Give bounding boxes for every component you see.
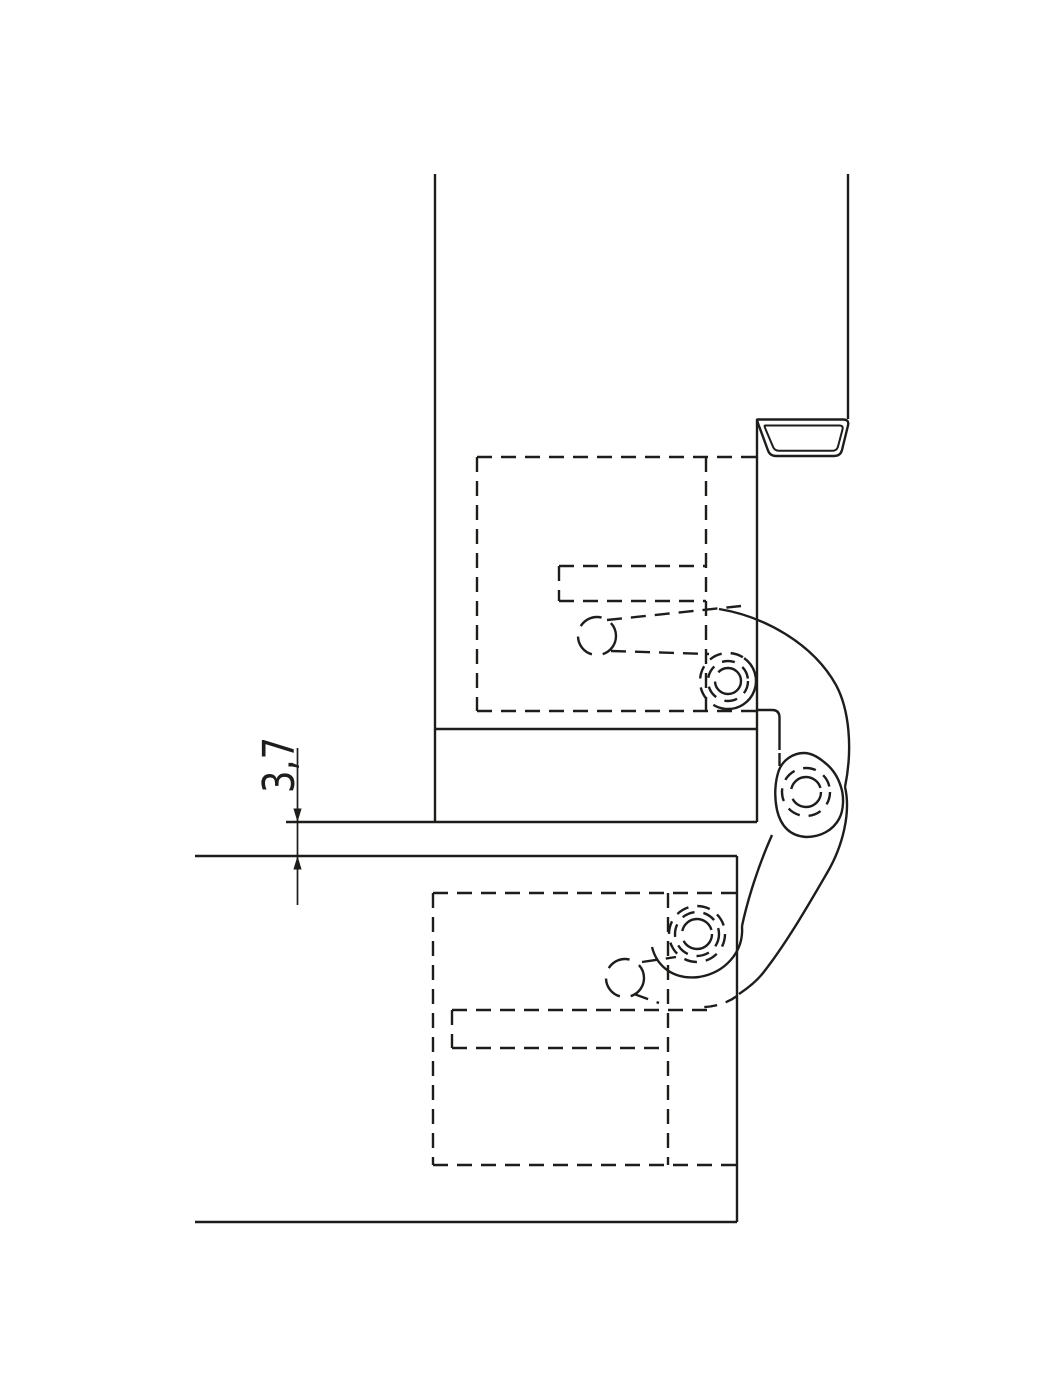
arm-lower-end-cap: [652, 926, 742, 977]
hinge-section-drawing: 3,7: [0, 0, 1050, 1400]
pivot-upper-pin-circle: [715, 668, 741, 694]
dimension-text: 3,7: [254, 737, 305, 793]
seal-inner-outline: [765, 426, 843, 451]
arm-outer-frame-link: [739, 787, 847, 994]
pivot-middle: [782, 768, 830, 816]
door-cup-link-upper-dash: [607, 606, 741, 620]
door-leaf: [286, 174, 848, 822]
dimension-arrow-lower: [293, 856, 301, 870]
arm-left-frame-link: [742, 835, 772, 926]
pivot-upper: [700, 653, 756, 709]
dimension-arrow-upper: [293, 809, 301, 823]
dimension-gap: 3,7: [254, 737, 305, 905]
pivot-middle-outer-ring: [782, 768, 830, 816]
pivot-middle-pin-circle: [791, 777, 821, 807]
frame-side-hinge-cup-hidden: [433, 893, 737, 1165]
hinge-arm: [652, 609, 849, 1007]
door-cup-cam-circle: [578, 617, 616, 655]
frame-cup-link-lower-dash: [634, 994, 659, 1003]
frame: [195, 856, 737, 1222]
door-side-hinge-cup-hidden: [477, 457, 757, 711]
door-cup-link-lower-dash: [611, 651, 709, 654]
arm-knuckle-middle-cap: [775, 753, 843, 837]
seal-gasket: [757, 420, 848, 457]
drawing-page: 3,7: [0, 0, 1050, 1400]
arm-lower-end-cap-hidden: [697, 996, 737, 1007]
pivot-lower-outer-ring: [669, 906, 725, 962]
pivot-lower-pin-circle: [682, 919, 712, 949]
pivot-lower: [669, 906, 725, 962]
frame-cup-cam-circle: [606, 959, 644, 997]
door-edge-notch: [757, 710, 780, 750]
